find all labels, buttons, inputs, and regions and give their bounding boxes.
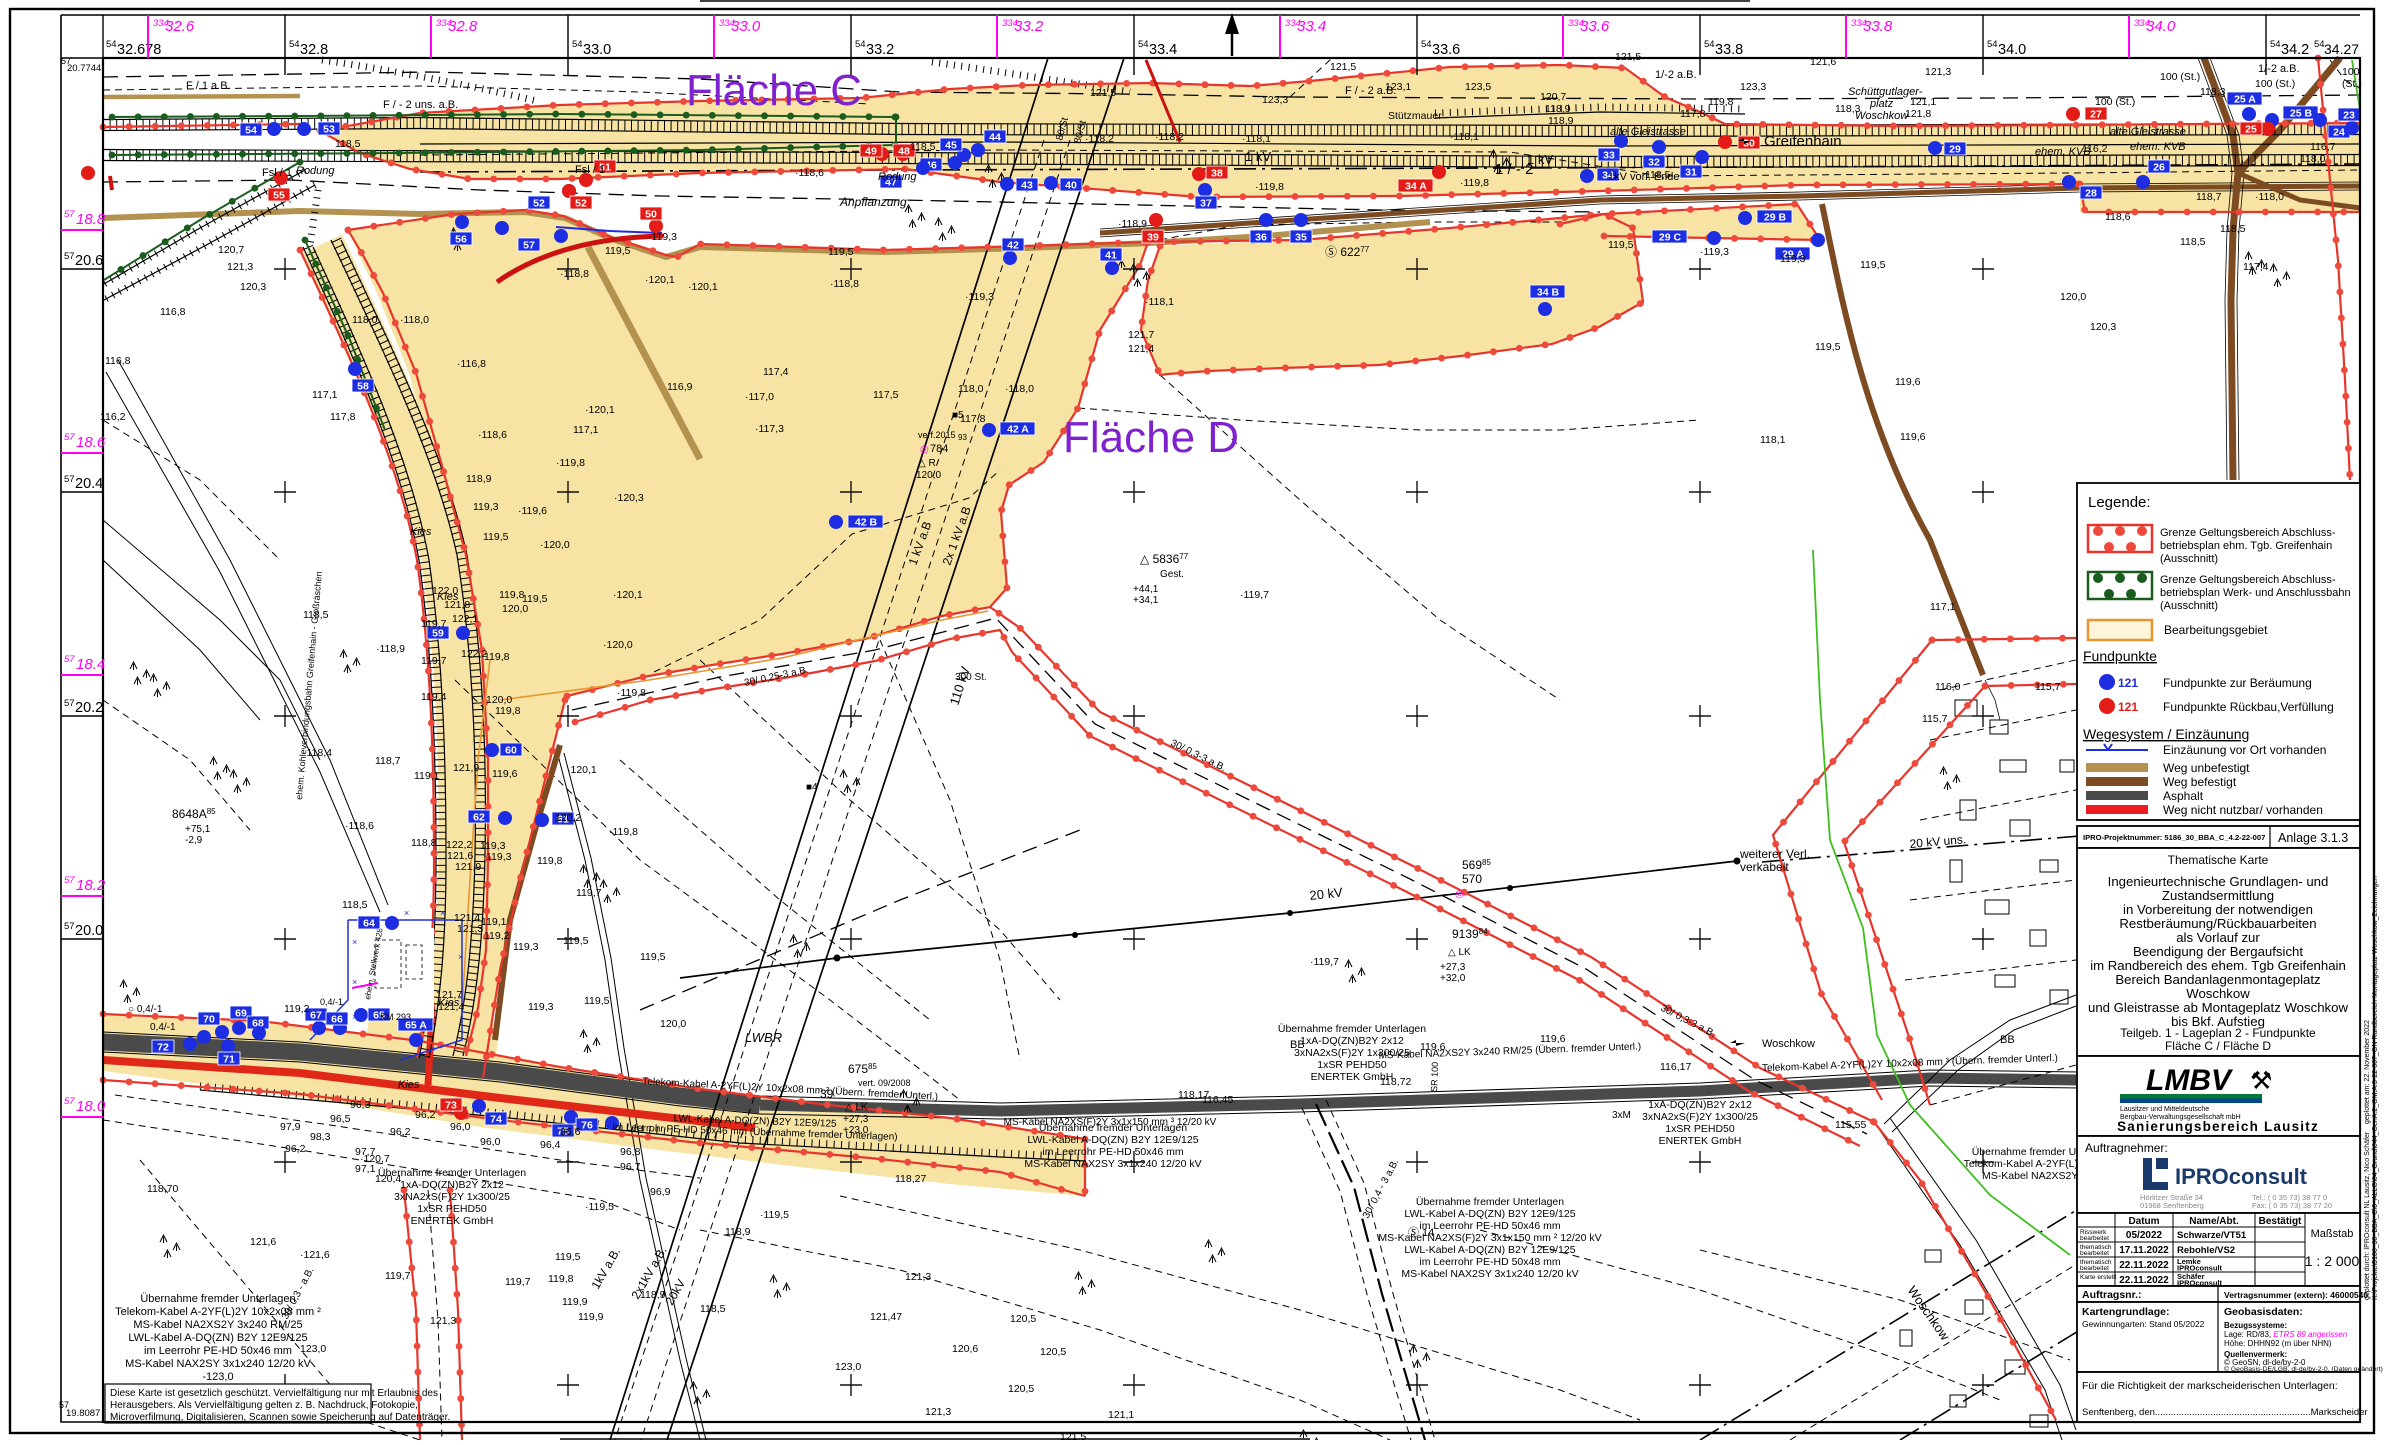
svg-text:118,9: 118,9 (725, 1226, 751, 1238)
svg-text:MS-Kabel NAX2SY 3x1x240 12/20: MS-Kabel NAX2SY 3x1x240 12/20 kV (1024, 1158, 1201, 1170)
svg-text:115,55: 115,55 (1835, 1119, 1866, 1131)
svg-text:Rodung: Rodung (878, 171, 917, 183)
svg-text:Datum: Datum (2128, 1216, 2159, 1227)
svg-text:96,9: 96,9 (650, 1186, 671, 1198)
svg-text:96,3: 96,3 (350, 1099, 371, 1111)
svg-text:Teilgeb. 1 - Lageplan 2 - Fund: Teilgeb. 1 - Lageplan 2 - Fundpunkte (2120, 1026, 2316, 1040)
svg-text:97,9: 97,9 (280, 1121, 301, 1133)
svg-text:121,7: 121,7 (1128, 329, 1154, 341)
svg-text:96,4: 96,4 (540, 1139, 561, 1151)
svg-text:115,7: 115,7 (1922, 713, 1948, 725)
svg-text:MS-Kabel NA2XS(F)2Y 3x1x150 mm: MS-Kabel NA2XS(F)2Y 3x1x150 mm ² 12/20 k… (1378, 1232, 1601, 1244)
svg-text:121,4: 121,4 (1128, 343, 1154, 355)
svg-text:64: 64 (363, 918, 375, 930)
svg-text:LMBV: LMBV (2146, 1064, 2234, 1097)
svg-text:20.2: 20.2 (75, 700, 103, 716)
svg-text:118,3: 118,3 (2200, 86, 2226, 98)
svg-text:119,3: 119,3 (486, 851, 512, 863)
svg-text:96,2: 96,2 (285, 1143, 306, 1155)
svg-text:54: 54 (106, 39, 117, 50)
svg-text:·116,8: ·116,8 (457, 358, 486, 370)
svg-text:34 A: 34 A (1405, 181, 1427, 193)
svg-text:120,0: 120,0 (916, 470, 941, 481)
svg-text:1/-2 a.B.: 1/-2 a.B. (2258, 63, 2300, 75)
svg-text:·118,8: ·118,8 (560, 268, 589, 280)
svg-text:Restberäumung/Rückbauarbeiten: Restberäumung/Rückbauarbeiten (2119, 916, 2316, 931)
svg-text:57: 57 (64, 875, 75, 886)
svg-text:33.4: 33.4 (1149, 42, 1177, 58)
svg-text:Kies: Kies (398, 1079, 420, 1091)
svg-text:122,1: 122,1 (452, 613, 478, 625)
svg-text:121,3: 121,3 (430, 1315, 456, 1327)
svg-text:im Leerrohr PE-HD 50x46 mm: im Leerrohr PE-HD 50x46 mm (144, 1345, 292, 1357)
svg-text:119,5: 119,5 (828, 246, 854, 258)
svg-text:96,2: 96,2 (390, 1126, 411, 1138)
svg-text:Weg befestigt: Weg befestigt (2163, 775, 2237, 789)
svg-text:118,5: 118,5 (910, 141, 936, 153)
svg-text:121,1: 121,1 (1108, 1409, 1134, 1421)
svg-text:29 B: 29 B (1764, 212, 1787, 224)
svg-text:116,45: 116,45 (1202, 1094, 1233, 1106)
svg-text:MS-Kabel NA2XS2Y 3x240 RM/25: MS-Kabel NA2XS2Y 3x240 RM/25 (133, 1319, 302, 1331)
svg-text:50: 50 (645, 209, 657, 221)
svg-text:1 kV: 1 kV (1527, 152, 1553, 167)
svg-text:118,5: 118,5 (303, 609, 329, 621)
svg-text:121,3: 121,3 (925, 1406, 951, 1418)
svg-text:70: 70 (203, 1014, 215, 1026)
svg-text:60: 60 (505, 745, 517, 757)
svg-text:alte Gleistrasse: alte Gleistrasse (1610, 126, 1686, 138)
svg-text:121,9: 121,9 (455, 861, 481, 873)
svg-text:33.4: 33.4 (1297, 18, 1326, 35)
svg-text:120,5: 120,5 (1008, 1383, 1034, 1395)
svg-text:96,0: 96,0 (450, 1121, 471, 1133)
svg-text:bearbeitet: bearbeitet (2080, 1250, 2109, 1257)
svg-text:119,5: 119,5 (563, 935, 589, 947)
svg-text:·119,8: ·119,8 (556, 457, 585, 469)
svg-text:34 B: 34 B (1537, 287, 1560, 299)
svg-text:Fläche C: Fläche C (686, 66, 862, 115)
svg-text:55: 55 (273, 190, 285, 202)
svg-text:42 A: 42 A (1007, 424, 1029, 436)
svg-text:Diese Karte ist gesetzlich ges: Diese Karte ist gesetzlich geschützt. Ve… (110, 1388, 438, 1399)
svg-text:⚒: ⚒ (2250, 1067, 2272, 1095)
svg-text:29 C: 29 C (1659, 232, 1682, 244)
svg-text:·118,0: ·118,0 (2255, 191, 2284, 203)
svg-text:Fläche D: Fläche D (1063, 413, 1239, 462)
svg-text:67: 67 (310, 1010, 322, 1022)
svg-text:LWBR: LWBR (745, 1030, 782, 1045)
svg-text:Fax: ( 0 35 73) 38 77 20: Fax: ( 0 35 73) 38 77 20 (2252, 1201, 2332, 1210)
svg-text:32.8: 32.8 (448, 18, 478, 35)
svg-text:Grenze Geltungsbereich Abschlu: Grenze Geltungsbereich Abschluss- (2160, 527, 2336, 539)
svg-text:Höhe: DHHN92 (m über NHN): Höhe: DHHN92 (m über NHN) (2224, 1339, 2332, 1348)
svg-text:93: 93 (958, 433, 967, 442)
svg-text:73: 73 (445, 1100, 457, 1112)
svg-text:23: 23 (2343, 110, 2355, 122)
svg-text:120,2: 120,2 (555, 812, 581, 824)
svg-text:Zustandsermittlung: Zustandsermittlung (2162, 888, 2274, 903)
svg-text:01968 Senftenberg: 01968 Senftenberg (2140, 1201, 2204, 1210)
svg-text:35: 35 (1295, 232, 1307, 244)
svg-text:im Leerrohr PE-HD 50x46 mm: im Leerrohr PE-HD 50x46 mm (1419, 1220, 1560, 1232)
svg-text:betriebsplan ehm. Tgb. Greifen: betriebsplan ehm. Tgb. Greifenhain (2160, 540, 2332, 552)
svg-text:·120,0: ·120,0 (603, 639, 633, 651)
svg-text:54: 54 (2314, 39, 2325, 50)
svg-text:als Vorlauf zur: als Vorlauf zur (2176, 930, 2260, 945)
svg-text:119,1: 119,1 (414, 770, 440, 782)
svg-text:54: 54 (289, 39, 300, 50)
svg-text:96,6: 96,6 (560, 1126, 581, 1138)
svg-text:·119,8: ·119,8 (617, 687, 646, 699)
svg-text:119,8: 119,8 (499, 589, 525, 601)
svg-text:Gewinnungarten: Stand 05/2022: Gewinnungarten: Stand 05/2022 (2082, 1319, 2205, 1329)
svg-text:×: × (440, 908, 445, 918)
svg-text:×: × (352, 937, 357, 947)
svg-text:Fläche C / Fläche D: Fläche C / Fläche D (2165, 1039, 2271, 1053)
svg-text:Weg unbefestigt: Weg unbefestigt (2163, 761, 2250, 775)
svg-text:119,5: 119,5 (640, 951, 666, 963)
svg-text:121,5: 121,5 (1330, 61, 1356, 73)
svg-text:118,9: 118,9 (1548, 115, 1574, 127)
svg-text:×: × (404, 908, 409, 918)
svg-text:118,5: 118,5 (2220, 223, 2246, 235)
svg-text:119,2: 119,2 (484, 930, 510, 942)
svg-text:37: 37 (1200, 198, 1212, 210)
svg-text:Legende:: Legende: (2088, 494, 2151, 511)
svg-text:·119,7: ·119,7 (1310, 956, 1339, 968)
svg-text:116,9: 116,9 (667, 381, 693, 393)
svg-text:Karte erstellt: Karte erstellt (2080, 1274, 2117, 1281)
svg-text:72: 72 (157, 1042, 169, 1054)
svg-text:·118,1: ·118,1 (1145, 296, 1174, 308)
svg-text:118,5: 118,5 (2180, 236, 2206, 248)
svg-text:119,7: 119,7 (421, 655, 447, 667)
svg-text:116,8: 116,8 (105, 355, 131, 367)
svg-text:97,1: 97,1 (355, 1163, 376, 1175)
svg-text:121,3: 121,3 (905, 1271, 931, 1283)
svg-text:100 (St.): 100 (St.) (2160, 71, 2200, 83)
svg-text:118,7: 118,7 (375, 755, 401, 767)
svg-text:·120,0: ·120,0 (540, 539, 570, 551)
svg-text:■4: ■4 (806, 782, 818, 793)
svg-text:·119,8: ·119,8 (609, 826, 638, 838)
svg-text:118,8: 118,8 (411, 837, 437, 849)
svg-text:ENERTEK GmbH: ENERTEK GmbH (1659, 1135, 1742, 1147)
svg-text:·120,1: ·120,1 (567, 764, 597, 776)
svg-text:Einzäunung vor Ort vorhanden: Einzäunung vor Ort vorhanden (2163, 743, 2326, 757)
svg-text:115,7: 115,7 (2035, 681, 2061, 693)
svg-text:118,9: 118,9 (1545, 103, 1571, 115)
svg-text:119,6: 119,6 (1540, 1033, 1566, 1045)
svg-text:123,0: 123,0 (300, 1343, 326, 1355)
svg-text:33: 33 (1603, 150, 1615, 162)
svg-text:△ R: △ R (918, 458, 936, 469)
svg-text:96,5: 96,5 (330, 1113, 351, 1125)
svg-text:570: 570 (1462, 872, 1482, 886)
svg-text:Lage: RD/83, ETRS 89 angeriss: Lage: RD/83, ETRS 89 angerissen (2224, 1330, 2348, 1339)
svg-text:118,5: 118,5 (700, 1303, 726, 1315)
svg-text:62: 62 (473, 812, 485, 824)
svg-text:34.0: 34.0 (2146, 18, 2176, 35)
svg-text:25 B: 25 B (2290, 108, 2313, 120)
svg-text:33.6: 33.6 (1432, 42, 1460, 58)
svg-text:121,3: 121,3 (457, 923, 483, 935)
svg-text:123,3: 123,3 (1262, 94, 1288, 106)
svg-text:Anlage 3.1.3: Anlage 3.1.3 (2278, 831, 2348, 845)
svg-text:121,8: 121,8 (444, 599, 470, 611)
svg-text:◎: ◎ (920, 444, 929, 455)
svg-text:18.6: 18.6 (76, 434, 106, 451)
svg-text:·120,1: ·120,1 (613, 589, 643, 601)
svg-text:IPRO-Projektnummer: 5186_30_BB: IPRO-Projektnummer: 5186_30_BBA_C_4.2-22… (2083, 833, 2265, 842)
svg-text:123,1: 123,1 (1385, 81, 1411, 93)
svg-text:26: 26 (2153, 162, 2165, 174)
svg-text:·120,3: ·120,3 (614, 492, 644, 504)
svg-text:118,5: 118,5 (1645, 169, 1671, 181)
svg-text:116,0: 116,0 (1935, 681, 1961, 693)
svg-text:120,5: 120,5 (1040, 1346, 1066, 1358)
svg-text:·118,2: ·118,2 (1155, 131, 1184, 143)
svg-text:ENERTEK GmbH: ENERTEK GmbH (411, 1215, 494, 1227)
svg-text:Name/Abt.: Name/Abt. (2189, 1216, 2239, 1227)
svg-text:1/-2 a.B.: 1/-2 a.B. (1655, 69, 1697, 81)
svg-text:1 : 2 000: 1 : 2 000 (2305, 1253, 2360, 1269)
svg-text:96,8: 96,8 (620, 1146, 641, 1158)
svg-text:118,9: 118,9 (640, 1289, 666, 1301)
svg-text:117,8: 117,8 (1680, 108, 1706, 120)
svg-text:geplottet durch: IPROconsult N: geplottet durch: IPROconsult NL Lausitz,… (2364, 1020, 2371, 1300)
svg-text:121,3: 121,3 (227, 261, 253, 273)
svg-text:33.2: 33.2 (1014, 18, 1044, 35)
svg-text:76: 76 (581, 1120, 593, 1132)
svg-text:·119,5: ·119,5 (585, 1201, 614, 1213)
svg-text:34.2: 34.2 (2281, 42, 2309, 58)
svg-text:·118,0: ·118,0 (400, 314, 429, 326)
svg-text:·119,3: ·119,3 (1700, 246, 1729, 258)
svg-text:·117,0: ·117,0 (745, 391, 774, 403)
svg-text:119,7: 119,7 (421, 618, 447, 630)
svg-text:18.8: 18.8 (76, 211, 106, 228)
svg-text:120,0: 120,0 (502, 603, 528, 615)
svg-text:·118,4: ·118,4 (303, 747, 332, 759)
svg-text:116,7: 116,7 (2310, 141, 2336, 153)
svg-text:54: 54 (572, 39, 583, 50)
svg-text:121,7: 121,7 (436, 989, 462, 1001)
svg-text:·118,2: ·118,2 (1085, 133, 1114, 145)
svg-text:120,7: 120,7 (1540, 91, 1566, 103)
svg-text:und Gleistrasse ab Montageplat: und Gleistrasse ab Montageplatz Woschkow (2088, 1000, 2348, 1015)
svg-text:121,8: 121,8 (1905, 108, 1931, 120)
svg-text:116,8: 116,8 (160, 306, 186, 318)
svg-text:119,2: 119,2 (284, 1003, 310, 1015)
svg-text:118,7: 118,7 (2196, 191, 2222, 203)
svg-text:117,8: 117,8 (330, 411, 356, 423)
svg-text:SR 100: SR 100 (1429, 1062, 1440, 1092)
svg-text:22.11.2022: 22.11.2022 (2119, 1275, 2169, 1286)
svg-text:·119,3: ·119,3 (965, 291, 994, 303)
svg-text:36: 36 (1255, 232, 1267, 244)
svg-text:34.0: 34.0 (1998, 42, 2026, 58)
svg-text:117,1: 117,1 (573, 424, 599, 436)
svg-text:117,1: 117,1 (1930, 601, 1956, 613)
svg-text:Schwarze/VT51: Schwarze/VT51 (2177, 1230, 2247, 1241)
svg-text:45: 45 (945, 140, 957, 152)
svg-text:40: 40 (1065, 180, 1077, 192)
svg-text:Rodung: Rodung (296, 165, 335, 177)
svg-text:119,5: 119,5 (584, 995, 610, 1007)
svg-text:69: 69 (235, 1008, 247, 1020)
svg-text:121,5: 121,5 (1090, 87, 1116, 99)
svg-text:121,4: 121,4 (438, 1001, 464, 1013)
svg-text:19.8087: 19.8087 (66, 1408, 100, 1419)
svg-text:·117,3: ·117,3 (755, 423, 784, 435)
svg-text:118,5: 118,5 (335, 138, 361, 150)
svg-text:+34,1: +34,1 (1133, 595, 1159, 606)
svg-text:118,70: 118,70 (147, 1183, 178, 1195)
svg-text:54: 54 (1987, 39, 1998, 50)
svg-text:ENERTEK GmbH: ENERTEK GmbH (1311, 1071, 1394, 1083)
svg-text:96,0: 96,0 (480, 1136, 501, 1148)
svg-text:42 B: 42 B (855, 517, 878, 529)
svg-text:·118,1: ·118,1 (1450, 131, 1479, 143)
svg-text:Stützmauer: Stützmauer (1388, 110, 1442, 122)
svg-text:Anpflanzung: Anpflanzung (839, 195, 907, 209)
svg-text:Fundpunkte zur Beräumung: Fundpunkte zur Beräumung (2163, 676, 2312, 690)
svg-text:F / 1 a.B.: F / 1 a.B. (186, 80, 231, 92)
svg-text:117,5: 117,5 (873, 389, 899, 401)
svg-text:Fundpunkte: Fundpunkte (2083, 648, 2157, 664)
svg-text:Kies: Kies (410, 526, 432, 538)
svg-text:24: 24 (2333, 127, 2345, 139)
svg-text:119,5: 119,5 (1860, 259, 1886, 271)
svg-text:119,3: 119,3 (513, 941, 539, 953)
svg-text:bearbeitet: bearbeitet (2080, 1235, 2109, 1242)
svg-text:·119,3: ·119,3 (648, 231, 677, 243)
svg-text:120,5: 120,5 (1010, 1313, 1036, 1325)
svg-text:117,4: 117,4 (2243, 261, 2269, 273)
svg-text:K:\Projekte\5186_30_BBA_C\0_AL: K:\Projekte\5186_30_BBA_C\0_ALLG\04_Grun… (2372, 876, 2379, 1300)
svg-text:49: 49 (865, 146, 877, 158)
svg-text:18.4: 18.4 (76, 656, 105, 673)
svg-text:116,2: 116,2 (2082, 143, 2108, 155)
svg-text:IPROconsult: IPROconsult (2175, 1164, 2308, 1189)
svg-text:Herausgebers. Als Vervielfälti: Herausgebers. Als Vervielfältigung gelte… (110, 1400, 418, 1411)
svg-text:38: 38 (1211, 168, 1223, 180)
svg-text:32.8: 32.8 (300, 42, 328, 58)
svg-text:54: 54 (245, 125, 257, 137)
svg-text:119,6: 119,6 (492, 768, 518, 780)
svg-text:Gest.: Gest. (1160, 569, 1184, 580)
svg-text:LWL-Kabel A-DQ(ZN) B2Y 12E9/12: LWL-Kabel A-DQ(ZN) B2Y 12E9/125 (1404, 1244, 1575, 1256)
svg-text:Bezugssysteme:: Bezugssysteme: (2224, 1321, 2287, 1330)
svg-text:1xSR PEHD50: 1xSR PEHD50 (417, 1203, 487, 1215)
svg-text:·119,6: ·119,6 (518, 505, 547, 517)
svg-text:1 kV: 1 kV (1245, 149, 1271, 164)
svg-text:Woschkow: Woschkow (1855, 110, 1909, 122)
svg-text:100: 100 (2342, 66, 2360, 78)
svg-text:verkabelt: verkabelt (1740, 860, 1789, 874)
svg-text:25: 25 (2245, 124, 2257, 136)
svg-text:119,7: 119,7 (385, 1270, 411, 1282)
svg-text:39: 39 (1147, 232, 1159, 244)
svg-text:66: 66 (331, 1014, 343, 1026)
svg-text:29: 29 (1949, 144, 1961, 156)
svg-text:54: 54 (1138, 39, 1149, 50)
svg-text:·118,9: ·118,9 (376, 643, 405, 655)
svg-text:20.6: 20.6 (75, 253, 103, 269)
svg-text:71: 71 (223, 1054, 235, 1066)
svg-text:Fsl / 1: Fsl / 1 (575, 164, 605, 176)
svg-text:121,47: 121,47 (870, 1311, 902, 1323)
svg-text:+75,1: +75,1 (185, 824, 211, 835)
svg-text:53: 53 (323, 124, 335, 136)
svg-text:120,6: 120,6 (952, 1343, 978, 1355)
svg-text:118,0: 118,0 (352, 314, 378, 326)
svg-text:3xM: 3xM (1612, 1110, 1631, 1121)
svg-text:Auftragnehmer:: Auftragnehmer: (2085, 1141, 2168, 1155)
svg-text:·119,8: ·119,8 (1460, 177, 1489, 189)
svg-text:120,7: 120,7 (218, 244, 244, 256)
svg-text:119,3: 119,3 (528, 1001, 554, 1013)
svg-text:Ingenieurtechnische Grundlagen: Ingenieurtechnische Grundlagen- und (2108, 874, 2329, 889)
svg-text:MS-Kabel NAX2SY 3x1x240 12/20: MS-Kabel NAX2SY 3x1x240 12/20 kV (125, 1358, 311, 1370)
svg-text:27: 27 (2090, 109, 2102, 121)
svg-text:·120,1: ·120,1 (645, 274, 675, 286)
svg-text:1xSR PEHD50: 1xSR PEHD50 (1665, 1123, 1735, 1135)
svg-text:·119,5: ·119,5 (760, 1209, 789, 1221)
svg-text:33.2: 33.2 (866, 42, 894, 58)
svg-text:platz: platz (1869, 98, 1894, 110)
svg-text:×: × (352, 977, 357, 987)
svg-text:×: × (430, 1044, 435, 1054)
svg-text:Wegesystem / Einzäunung: Wegesystem / Einzäunung (2083, 726, 2249, 742)
svg-text:20.7744: 20.7744 (67, 63, 101, 74)
svg-text:+27,3: +27,3 (843, 1114, 869, 1125)
svg-text:·118,6: ·118,6 (478, 429, 507, 441)
svg-text:98,3: 98,3 (310, 1131, 331, 1143)
svg-text:20.4: 20.4 (75, 476, 103, 492)
svg-text:120,0: 120,0 (2060, 291, 2086, 303)
svg-text:3xNA2xS(F)2Y 1x300/25: 3xNA2xS(F)2Y 1x300/25 (394, 1191, 510, 1203)
svg-text:22.11.2022: 22.11.2022 (2119, 1260, 2169, 1271)
svg-text:118,0: 118,0 (958, 383, 984, 395)
svg-text:·118,0: ·118,0 (1005, 383, 1034, 395)
svg-text:LWL-Kabel A-DQ(ZN) B2Y 12E9/12: LWL-Kabel A-DQ(ZN) B2Y 12E9/125 (1404, 1208, 1575, 1220)
svg-text:(St.): (St.) (2342, 78, 2362, 90)
svg-text:+27,3: +27,3 (1440, 962, 1466, 973)
svg-text:119,5: 119,5 (1815, 341, 1841, 353)
svg-text:120,0: 120,0 (660, 1018, 686, 1030)
svg-text:119,8: 119,8 (537, 855, 563, 867)
svg-text:im Randbereich des ehem. Tgb G: im Randbereich des ehem. Tgb Greifenhain (2090, 958, 2346, 973)
svg-text:Greifenhain: Greifenhain (1764, 133, 1842, 150)
svg-text:1xSR PEHD50: 1xSR PEHD50 (1317, 1059, 1387, 1071)
svg-text:119,6: 119,6 (1895, 376, 1921, 388)
svg-text:○ 0,4/-1: ○ 0,4/-1 (128, 1004, 163, 1015)
svg-text:118,27: 118,27 (895, 1173, 926, 1185)
svg-text:LWL-Kabel A-DQ(ZN) B2Y 12E9/12: LWL-Kabel A-DQ(ZN) B2Y 12E9/125 (128, 1332, 307, 1344)
svg-text:-123,0: -123,0 (202, 1371, 233, 1383)
svg-text:Übernahme fremder Unterlagen: Übernahme fremder Unterlagen (140, 1293, 295, 1305)
svg-text:100 (St.): 100 (St.) (2095, 96, 2135, 108)
svg-text:57: 57 (64, 698, 75, 709)
svg-text:+32,0: +32,0 (1440, 973, 1466, 984)
svg-text:52: 52 (533, 198, 545, 210)
svg-text:119,5: 119,5 (605, 245, 631, 257)
svg-text:32.6: 32.6 (165, 18, 195, 35)
svg-text:118,1: 118,1 (1760, 434, 1786, 446)
